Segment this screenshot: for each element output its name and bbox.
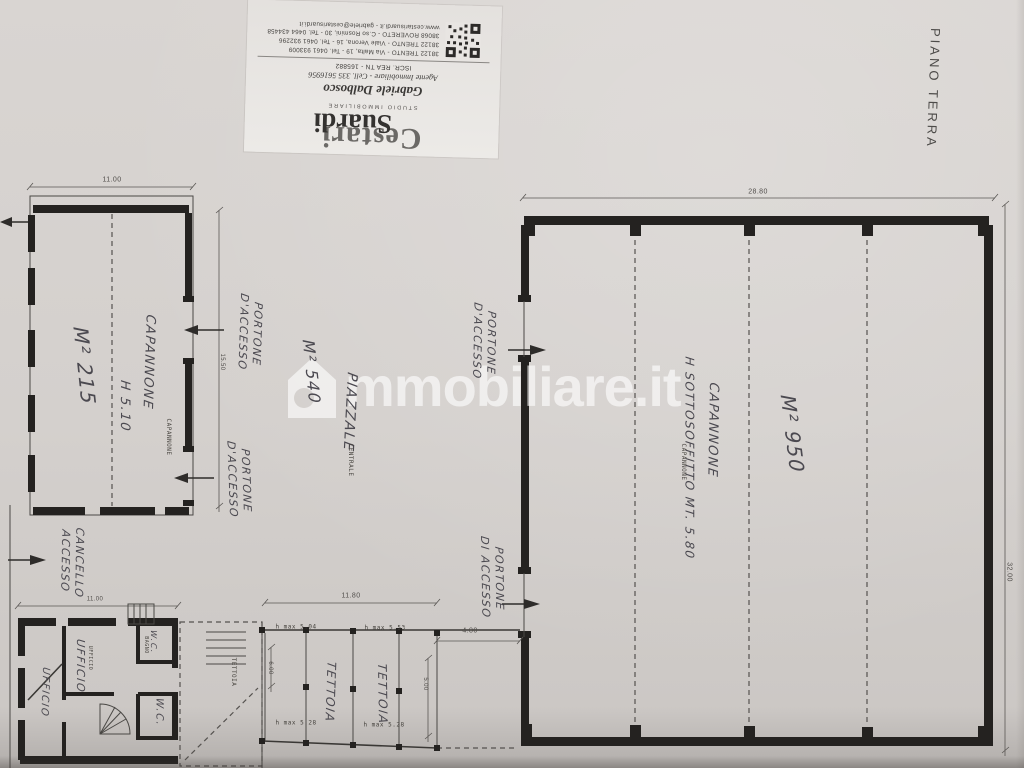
label-portone-4: PORTONE DI ACCESSO (478, 535, 507, 620)
dim-depth-left-building: 15.50 (217, 353, 225, 370)
dim-tettoia-depth-2: 5.00 (420, 677, 428, 690)
label-portone-3: PORTONE D'ACCESSO (470, 302, 499, 383)
typed-capannone-left: CAPANNONE (164, 418, 172, 455)
dim-tettoia-depth-1: 6.00 (265, 661, 273, 674)
label-tettoia-2: TETTOIA (374, 663, 390, 726)
agent-name: Gabriele Dalbosco (323, 81, 423, 100)
label-tettoia-1: TETTOIA (321, 660, 338, 724)
typed-hmax-3: h max 5.28 (275, 719, 316, 727)
agency-addresses: 38122 TRENTO - Via Malta, 19 - Tel. 0461… (267, 18, 440, 57)
dim-gap: 4.80 (462, 628, 477, 637)
typed-hmax-2: h max 5.53 (364, 624, 405, 632)
typed-capannone-right: CAPANNONE (679, 443, 687, 480)
typed-bagno: BAGNO (143, 636, 149, 654)
label-h-left: H 5.10 (116, 379, 132, 433)
site-boundary (0, 217, 30, 768)
spiral-stair (100, 704, 130, 734)
label-capannone-right: CAPANNONE (703, 381, 721, 478)
qr-code (445, 22, 482, 59)
label-ufficio-2: UFFICIO (73, 638, 87, 694)
typed-hmax-1: h max 5.04 (275, 623, 316, 631)
dim-width-left-building: 11.00 (103, 177, 122, 186)
label-capannone-left: CAPANNONE (138, 313, 157, 411)
dim-office-width: 11.00 (87, 596, 104, 604)
label-portone-2: PORTONE D'ACCESSO (224, 440, 254, 519)
dim-width-right-building: 28.80 (748, 189, 768, 198)
dim-tettoia-width: 11.80 (342, 593, 361, 602)
agency-stamp: Cestari Suardi STUDIO IMMOBILIARE Gabrie… (244, 0, 502, 159)
side-canopy (180, 622, 262, 766)
scanned-floorplan-page: mmobiliare.it Cestari Suardi STUDIO IMMO… (0, 0, 1024, 768)
label-cancello: CANCELLO ACCESSO (58, 525, 87, 600)
typed-ufficio: UFFICIO (87, 646, 93, 671)
scan-edge-shadow-bottom (0, 756, 1024, 768)
scan-edge-shadow-right (1016, 0, 1024, 768)
agency-logo: Cestari Suardi STUDIO IMMOBILIARE (250, 98, 493, 155)
right-warehouse (518, 194, 1009, 756)
typed-tettoia: TETTOIA (229, 658, 237, 687)
agent-registration: ISCR. REA TN - 165882 (335, 62, 411, 71)
label-wc-2: W.C. (152, 697, 165, 727)
typed-centrale: CENTRALE (346, 444, 354, 477)
label-ufficio-1: UFFICIO (37, 666, 51, 718)
label-portone-1: PORTONE D'ACCESSO (235, 292, 265, 373)
left-warehouse (27, 183, 223, 515)
dim-depth-right-building: 32.00 (1004, 562, 1013, 582)
label-wc-1: W.C. (148, 629, 158, 654)
agency-logo-line2: Suardi (250, 107, 455, 140)
typed-hmax-4: h max 5.28 (363, 721, 404, 729)
